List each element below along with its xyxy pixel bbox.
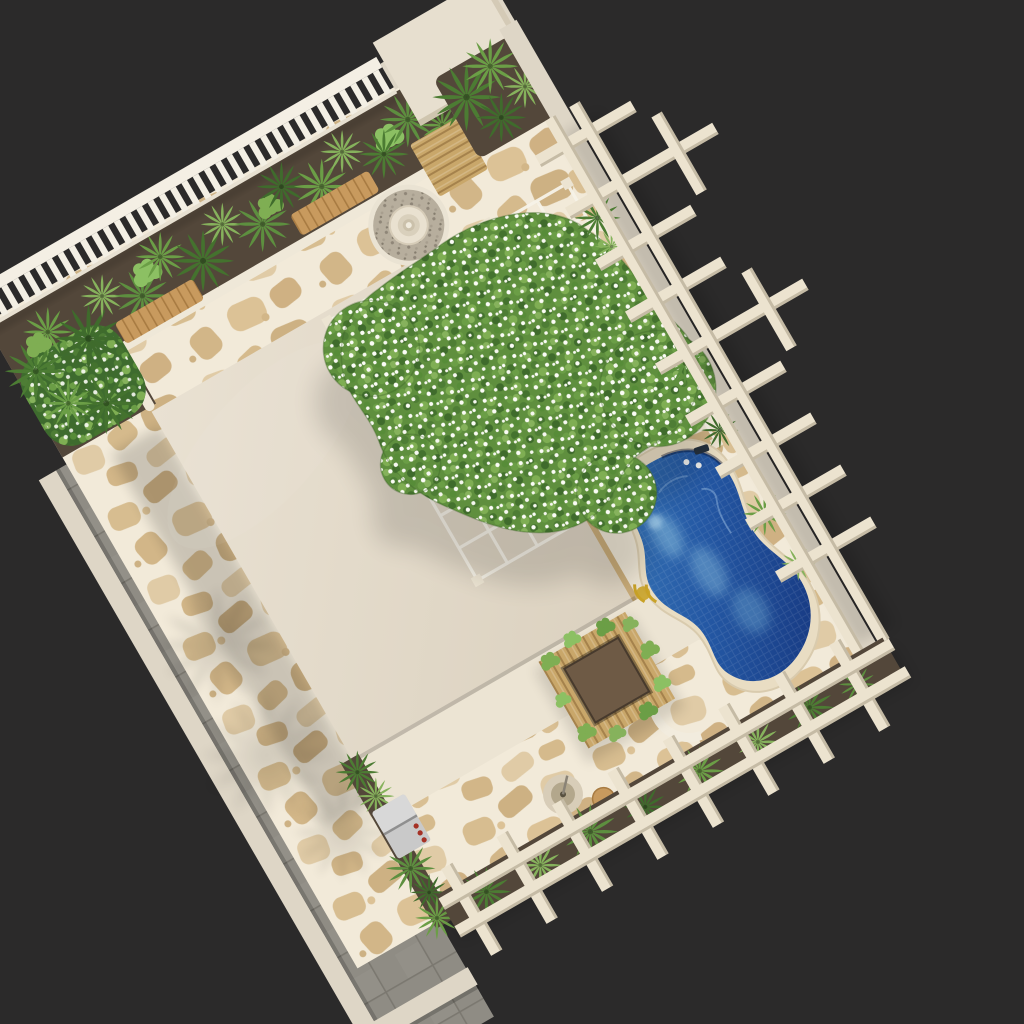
render-canvas (0, 0, 1024, 1024)
backyard-render (0, 0, 1024, 1024)
